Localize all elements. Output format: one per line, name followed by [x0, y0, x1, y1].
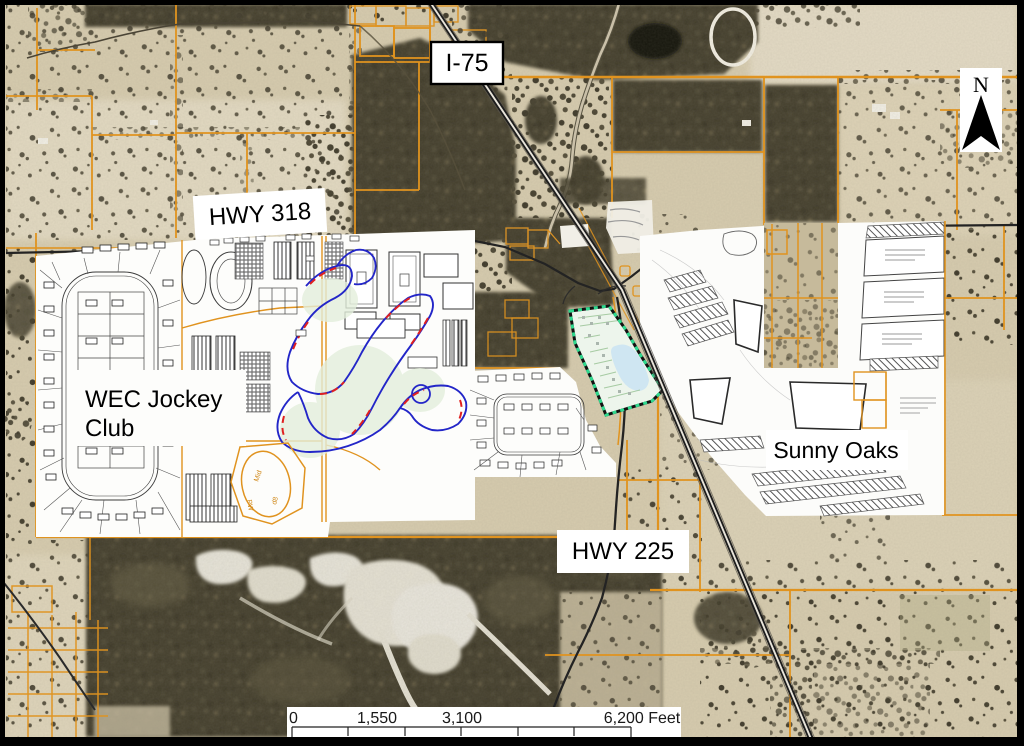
svg-text:1,550: 1,550: [357, 710, 397, 727]
svg-text:N: N: [973, 72, 989, 97]
svg-text:Sunny Oaks: Sunny Oaks: [773, 437, 898, 463]
svg-text:3,100: 3,100: [442, 710, 482, 727]
svg-text:I-75: I-75: [445, 49, 488, 77]
svg-text:HWY 225: HWY 225: [572, 538, 674, 565]
svg-text:Club: Club: [85, 415, 134, 442]
svg-text:WEC Jockey: WEC Jockey: [85, 386, 222, 413]
svg-text:6,200 Feet: 6,200 Feet: [604, 710, 681, 727]
svg-text:0: 0: [289, 710, 298, 727]
